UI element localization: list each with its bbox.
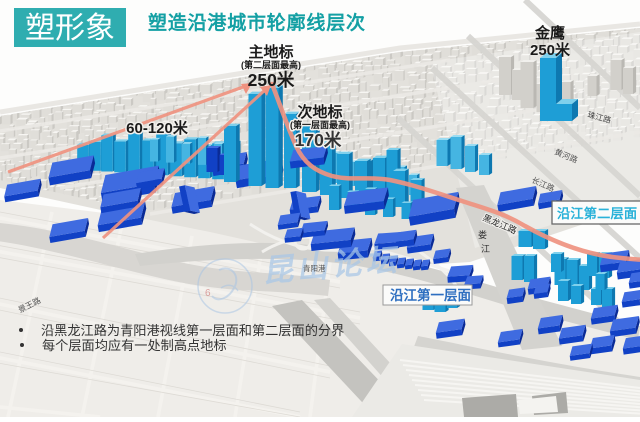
svg-text:250米: 250米 <box>248 70 295 90</box>
svg-text:塑造沿港城市轮廓线层次: 塑造沿港城市轮廓线层次 <box>148 11 366 34</box>
svg-text:6: 6 <box>205 288 211 299</box>
svg-text:塑形象: 塑形象 <box>25 12 115 45</box>
svg-text:沿黑龙江路为青阳港视线第一层面和第二层面的分界: 沿黑龙江路为青阳港视线第一层面和第二层面的分界 <box>41 322 344 338</box>
svg-text:次地标: 次地标 <box>297 103 342 121</box>
svg-text:主地标: 主地标 <box>248 43 293 61</box>
svg-text:每个层面均应有一处制高点地标: 每个层面均应有一处制高点地标 <box>42 337 227 353</box>
svg-text:沿江第一层面: 沿江第一层面 <box>390 287 471 303</box>
svg-text:(第一层面最高): (第一层面最高) <box>290 119 350 130</box>
svg-text:60-120米: 60-120米 <box>126 119 189 137</box>
svg-text:娄: 娄 <box>478 229 487 240</box>
svg-text:沿江第二层面: 沿江第二层面 <box>557 205 637 221</box>
svg-text:170米: 170米 <box>295 130 342 150</box>
svg-text:青阳港: 青阳港 <box>303 263 326 273</box>
svg-text:250米: 250米 <box>530 41 571 59</box>
svg-text:(第二层面最高): (第二层面最高) <box>241 59 301 70</box>
svg-text:江: 江 <box>481 244 490 254</box>
svg-text:金鹰: 金鹰 <box>534 24 565 42</box>
